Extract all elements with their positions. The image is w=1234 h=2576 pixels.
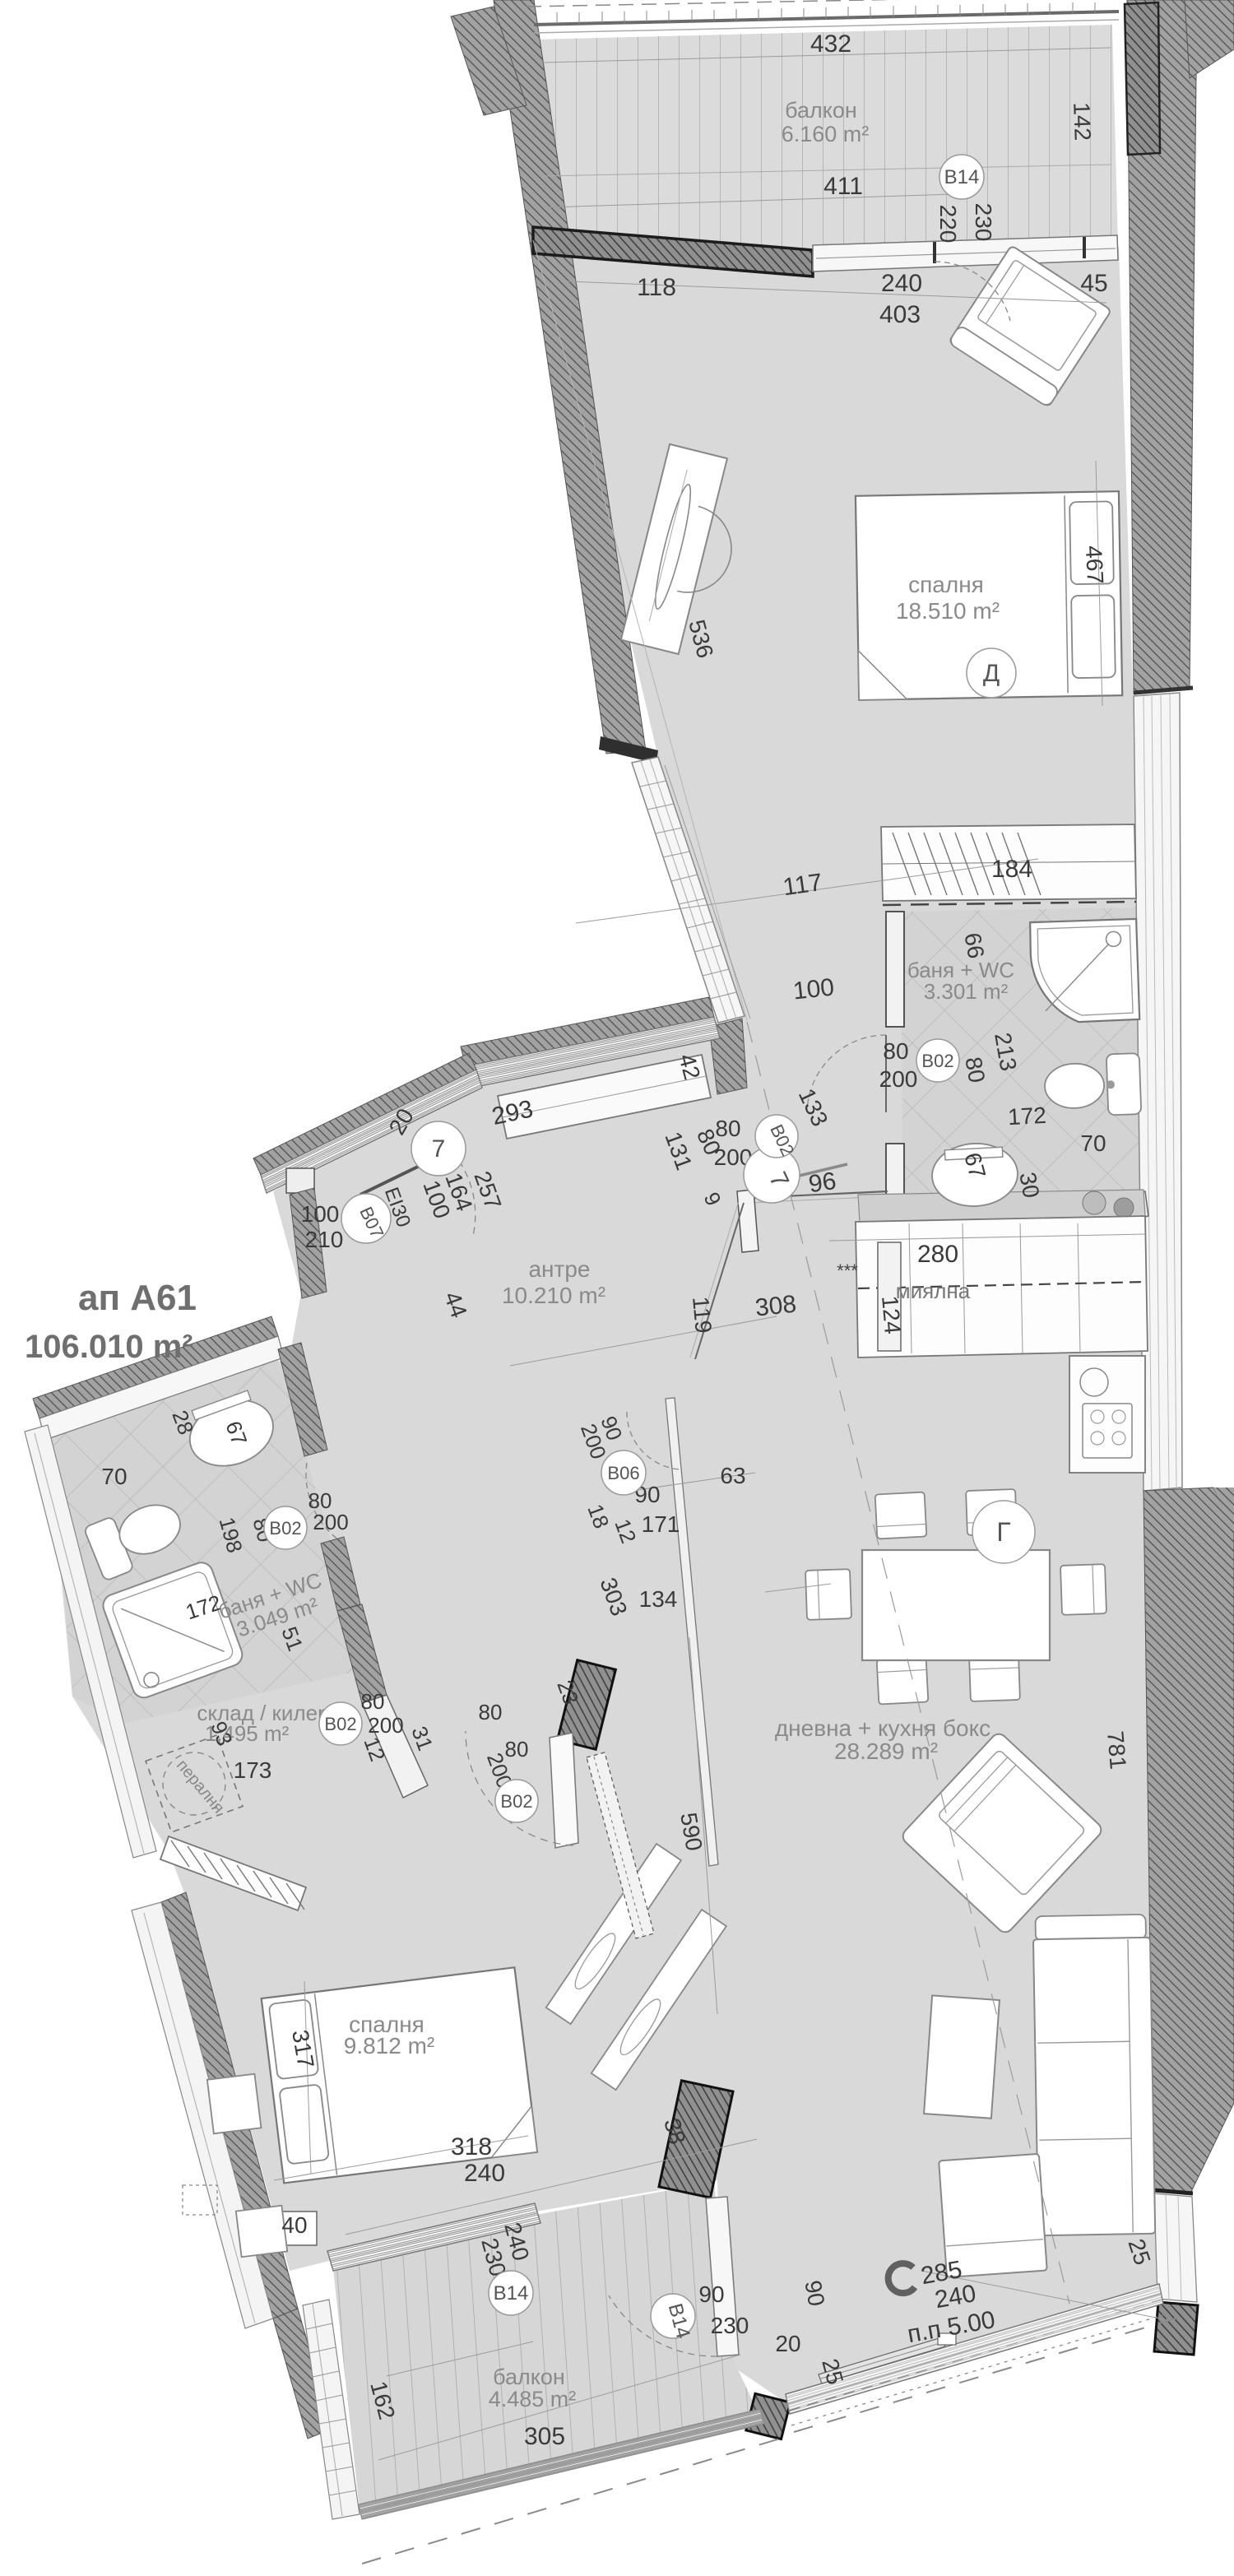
svg-text:80: 80 (960, 1055, 990, 1084)
svg-text:20: 20 (775, 2331, 800, 2356)
svg-text:дневна + кухня бокс: дневна + кухня бокс (775, 1715, 990, 1741)
svg-text:200: 200 (879, 1066, 918, 1092)
svg-text:240: 240 (881, 270, 922, 297)
svg-text:173: 173 (234, 1757, 272, 1783)
svg-text:спалня: спалня (908, 572, 984, 597)
svg-text:96: 96 (807, 1167, 838, 1198)
svg-text:3.301 m²: 3.301 m² (924, 979, 1009, 1004)
svg-text:миялна: миялна (896, 1279, 971, 1303)
svg-text:63: 63 (720, 1463, 745, 1488)
svg-text:90: 90 (800, 2278, 829, 2308)
svg-text:403: 403 (879, 301, 921, 328)
svg-text:80: 80 (479, 1700, 503, 1724)
svg-text:305: 305 (524, 2423, 565, 2450)
svg-text:антре: антре (528, 1256, 590, 1282)
svg-text:70: 70 (101, 1464, 127, 1489)
svg-text:781: 781 (1102, 1730, 1131, 1771)
svg-text:балкон: балкон (785, 98, 857, 123)
svg-text:318: 318 (451, 2133, 492, 2161)
svg-text:134: 134 (639, 1586, 678, 1612)
svg-text:432: 432 (810, 30, 851, 58)
svg-text:80: 80 (883, 1038, 908, 1064)
svg-text:240: 240 (464, 2160, 505, 2187)
svg-text:B02: B02 (324, 1714, 356, 1734)
svg-text:210: 210 (305, 1227, 344, 1252)
svg-text:9.812 m²: 9.812 m² (344, 2033, 435, 2058)
svg-text:80: 80 (505, 1737, 529, 1761)
svg-text:117: 117 (782, 869, 824, 901)
svg-text:171: 171 (642, 1511, 680, 1537)
svg-text:308: 308 (754, 1291, 797, 1322)
svg-text:6.160 m²: 6.160 m² (782, 122, 870, 146)
svg-text:18.510 m²: 18.510 m² (896, 598, 1000, 624)
svg-text:ап А61: ап А61 (78, 1278, 197, 1318)
svg-text:7: 7 (432, 1135, 446, 1163)
svg-text:28.289 m²: 28.289 m² (834, 1738, 938, 1764)
svg-text:411: 411 (823, 173, 863, 200)
svg-text:90: 90 (698, 2281, 724, 2307)
svg-text:106.010 m²: 106.010 m² (25, 1329, 193, 1365)
svg-text:B06: B06 (607, 1463, 639, 1483)
svg-text:200: 200 (313, 1510, 348, 1534)
svg-text:172: 172 (1007, 1102, 1046, 1130)
svg-text:B14: B14 (944, 166, 980, 188)
svg-text:200: 200 (368, 1713, 403, 1738)
svg-text:10.210 m²: 10.210 m² (502, 1283, 605, 1308)
svg-text:220: 220 (935, 205, 961, 244)
svg-text:***: *** (837, 1260, 858, 1281)
svg-text:4.485 m²: 4.485 m² (489, 2387, 577, 2411)
svg-text:66: 66 (959, 931, 989, 960)
svg-text:40: 40 (281, 2212, 307, 2238)
svg-text:45: 45 (1080, 270, 1107, 297)
svg-text:B02: B02 (269, 1518, 301, 1539)
svg-text:280: 280 (917, 1241, 958, 1268)
svg-text:230: 230 (971, 203, 996, 242)
svg-text:70: 70 (1080, 1130, 1106, 1156)
svg-text:184: 184 (991, 856, 1032, 883)
svg-text:119: 119 (688, 1296, 717, 1334)
svg-text:B02: B02 (500, 1791, 532, 1812)
svg-text:118: 118 (637, 274, 676, 301)
svg-text:142: 142 (1069, 102, 1096, 142)
svg-text:Г: Г (996, 1517, 1010, 1547)
svg-text:30: 30 (1014, 1170, 1044, 1200)
svg-text:467: 467 (1081, 545, 1108, 584)
svg-text:100: 100 (301, 1201, 340, 1227)
svg-text:100: 100 (791, 974, 835, 1005)
svg-text:B14: B14 (494, 2282, 529, 2304)
svg-text:Д: Д (983, 660, 1000, 687)
svg-text:80: 80 (361, 1689, 385, 1714)
svg-text:балкон: балкон (493, 2365, 565, 2389)
svg-text:B02: B02 (921, 1051, 953, 1071)
svg-text:230: 230 (711, 2313, 749, 2338)
